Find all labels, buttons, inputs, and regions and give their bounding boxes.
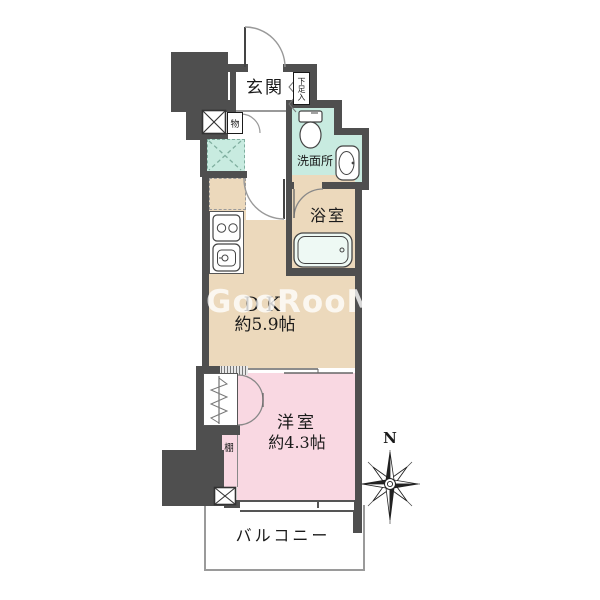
- bedroom-size: 約4.3帖: [238, 434, 356, 452]
- shoe-cabinet-label: 下足入: [296, 77, 307, 101]
- storage-door-arc: [241, 114, 260, 133]
- bathroom-label: 浴室: [301, 207, 355, 225]
- compass-north-label: N: [376, 429, 404, 447]
- storage-box: 物: [227, 112, 243, 134]
- watermark-text: GooRooM: [206, 284, 374, 320]
- bedroom-name: 洋室: [238, 414, 356, 434]
- genkan-step-line: [236, 110, 286, 112]
- washer-space-icon: [207, 139, 245, 174]
- wall: [162, 450, 224, 506]
- fridge-space-icon: [209, 178, 246, 210]
- watermark: GooRooM: [202, 282, 374, 322]
- floor-plan: N 玄関 下足入: [0, 0, 600, 600]
- compass-star-icon: [356, 448, 424, 526]
- shoe-cabinet-box: 下足入: [293, 72, 310, 105]
- hanger-rail-icon: [211, 376, 227, 424]
- hall-door-sweep: [246, 172, 286, 220]
- bedroom-window: [240, 500, 354, 512]
- wall: [288, 268, 362, 276]
- wall: [224, 500, 240, 508]
- wall: [196, 366, 204, 428]
- balcony-label: バルコニー: [212, 527, 354, 545]
- storage-label: 物: [230, 117, 239, 130]
- closet: [204, 374, 238, 426]
- pipe-space-x-icon: [203, 111, 226, 134]
- washroom-label: 洗面所: [291, 155, 339, 169]
- wall: [204, 171, 247, 178]
- wall: [286, 108, 292, 276]
- shelf-label: 棚: [221, 444, 237, 455]
- wall: [355, 182, 362, 276]
- window-mullion: [317, 500, 319, 508]
- wall: [202, 172, 209, 368]
- wall: [362, 128, 369, 190]
- wall: [204, 366, 220, 374]
- genkan-label: 玄関: [238, 79, 292, 99]
- wall: [200, 100, 236, 112]
- wall: [286, 182, 294, 189]
- bedroom-label: 洋室 約4.3帖: [238, 414, 356, 452]
- half-wall-hatch: [218, 366, 248, 375]
- entrance-door-arc: [245, 27, 285, 67]
- shelf-strip: [222, 433, 238, 487]
